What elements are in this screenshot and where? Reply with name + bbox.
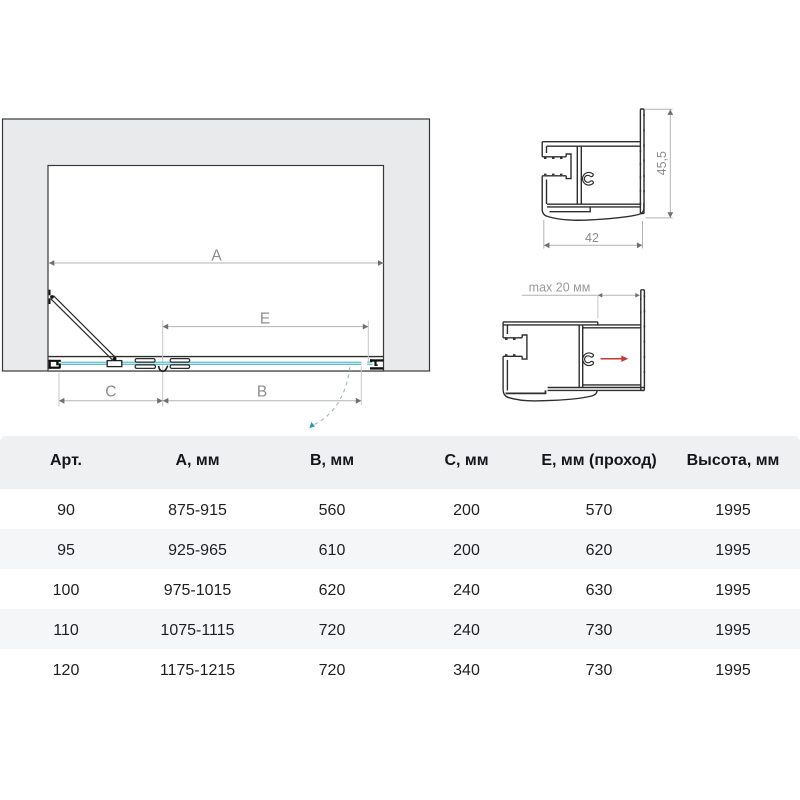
svg-text:C: C <box>105 383 116 400</box>
svg-text:A: A <box>211 248 222 265</box>
svg-text:E: E <box>260 311 270 328</box>
svg-text:42: 42 <box>585 231 599 245</box>
svg-text:B: B <box>257 383 267 400</box>
svg-text:max 20 мм: max 20 мм <box>529 281 591 295</box>
svg-text:45,5: 45,5 <box>655 151 669 175</box>
